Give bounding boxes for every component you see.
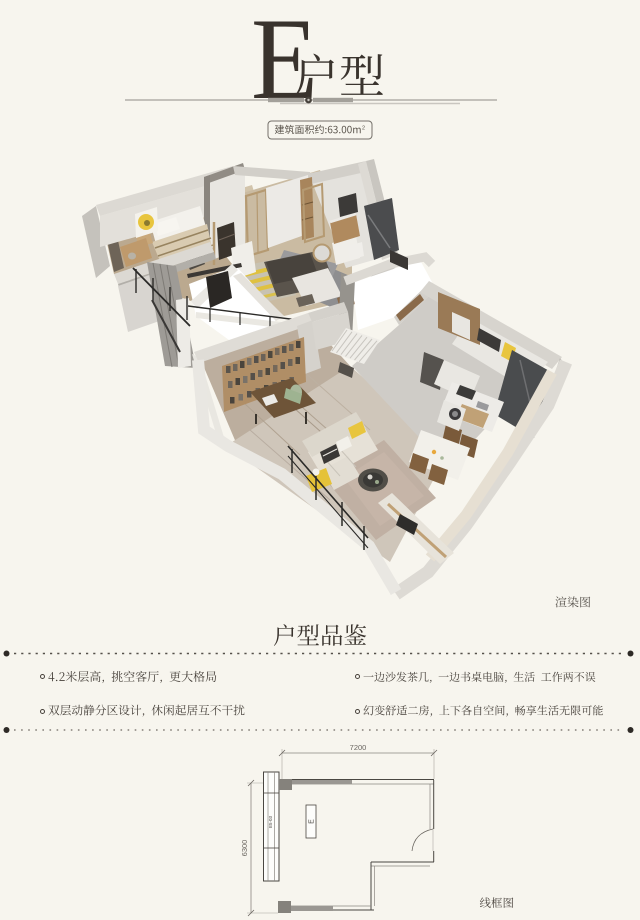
svg-text:2: 2	[362, 126, 365, 132]
svg-text:E5-03: E5-03	[268, 816, 273, 829]
svg-text:7200: 7200	[350, 743, 367, 752]
svg-text:E: E	[309, 819, 316, 824]
svg-text:6300: 6300	[240, 840, 249, 857]
